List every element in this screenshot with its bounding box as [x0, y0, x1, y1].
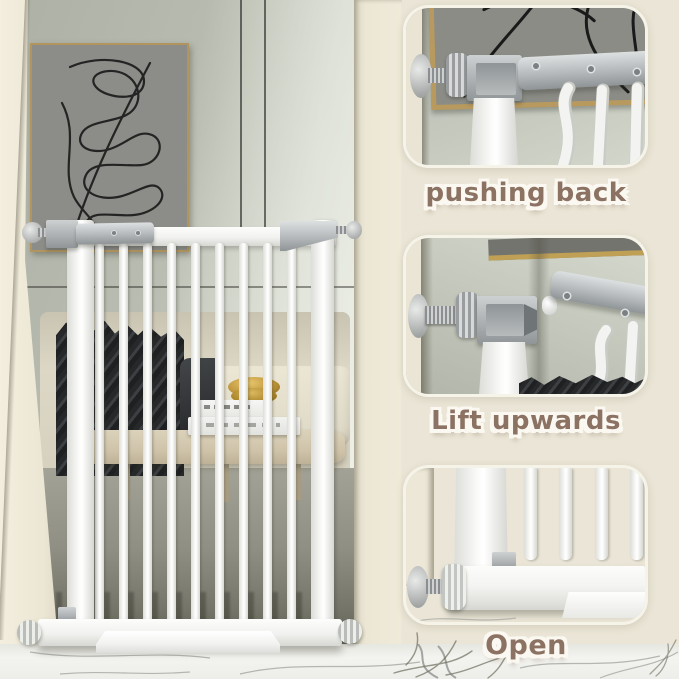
gate-post-right: [311, 220, 334, 642]
product-image: pushing back: [0, 0, 679, 679]
gate-bar: [263, 243, 272, 633]
living-room-scene: [0, 0, 402, 679]
gate-bar: [143, 243, 152, 633]
gate-handle-housing: [46, 220, 78, 248]
gate-bar: [95, 243, 104, 633]
gate-post-left: [67, 220, 94, 642]
panel-gate-bar: [559, 468, 572, 560]
handle-screw: [136, 231, 140, 235]
panel-gate-bar: [524, 468, 537, 560]
instruction-panel-pushing-back: [403, 5, 648, 168]
pressure-knob-bottom-right: [338, 619, 362, 644]
gate-bar: [239, 243, 248, 633]
gate-bar: [167, 243, 176, 633]
step-label-pushing-back: pushing back: [403, 178, 649, 208]
panel-1-scene: [406, 8, 645, 165]
panel-gate-bar: [595, 468, 608, 560]
instruction-panel-lift-upwards: [403, 235, 648, 397]
safety-gate: [0, 0, 402, 679]
panel-gate-bars: [406, 8, 645, 165]
gate-bar: [287, 243, 296, 633]
twig-decoration: [648, 626, 679, 678]
gate-bar: [191, 243, 200, 633]
panel-gate-bar: [630, 468, 643, 560]
pressure-knob-bottom-left: [17, 620, 41, 645]
threshold-ramp: [96, 631, 280, 653]
panel-gate-bars: [406, 238, 645, 394]
panel-2-scene: [406, 238, 645, 394]
gate-bar: [215, 243, 224, 633]
handle-screw: [112, 231, 116, 235]
step-label-lift-upwards: Lift upwards: [403, 406, 649, 436]
step-label-open: Open: [403, 630, 649, 661]
pressure-knob-top-right: [346, 221, 362, 239]
gate-bar: [119, 243, 128, 633]
